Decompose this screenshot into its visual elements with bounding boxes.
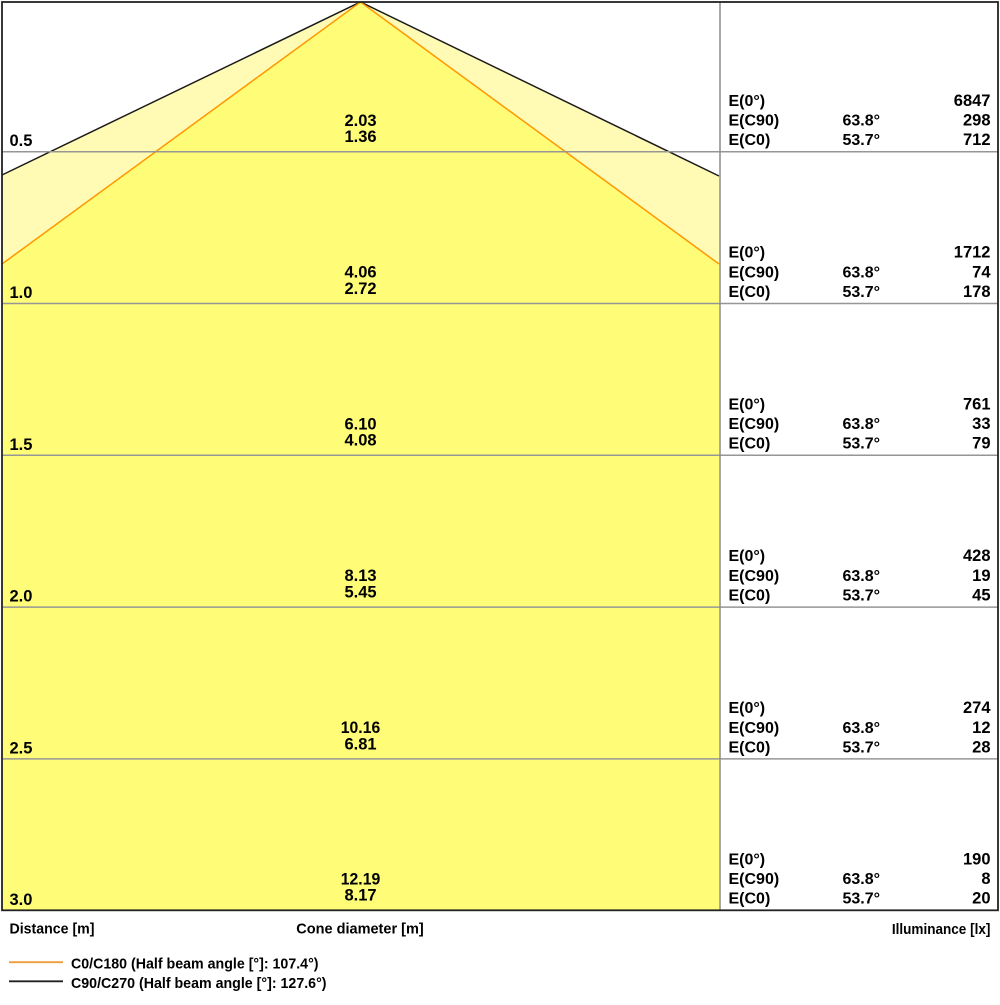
svg-text:10.16: 10.16 — [341, 719, 381, 737]
svg-text:E(C0): E(C0) — [729, 284, 771, 301]
svg-text:53.7°: 53.7° — [843, 739, 881, 756]
svg-text:6.10: 6.10 — [344, 415, 376, 433]
svg-text:C90/C270 (Half beam angle [°]:: C90/C270 (Half beam angle [°]: 127.6°) — [71, 975, 327, 992]
svg-text:5.45: 5.45 — [344, 584, 376, 602]
svg-text:C0/C180 (Half beam angle [°]:: C0/C180 (Half beam angle [°]: 107.4°) — [71, 956, 319, 973]
svg-text:53.7°: 53.7° — [843, 284, 881, 301]
svg-text:4.06: 4.06 — [344, 264, 376, 282]
svg-text:63.8°: 63.8° — [843, 568, 881, 585]
svg-text:53.7°: 53.7° — [843, 588, 881, 605]
svg-text:190: 190 — [963, 850, 991, 868]
svg-text:8.17: 8.17 — [344, 887, 376, 905]
svg-text:298: 298 — [963, 112, 991, 130]
svg-text:712: 712 — [963, 131, 991, 149]
svg-text:33: 33 — [972, 415, 990, 433]
svg-text:1.36: 1.36 — [344, 128, 376, 146]
svg-text:2.03: 2.03 — [344, 112, 376, 130]
svg-text:E(C0): E(C0) — [729, 739, 771, 756]
svg-text:E(0°): E(0°) — [729, 396, 766, 413]
svg-text:Distance [m]: Distance [m] — [10, 921, 95, 938]
svg-text:E(0°): E(0°) — [729, 93, 766, 110]
svg-text:428: 428 — [963, 547, 991, 565]
svg-text:E(C90): E(C90) — [729, 568, 780, 585]
svg-text:6.81: 6.81 — [344, 735, 376, 753]
svg-text:E(0°): E(0°) — [729, 548, 766, 565]
svg-text:19: 19 — [972, 567, 990, 585]
svg-text:74: 74 — [972, 263, 991, 281]
svg-text:1.5: 1.5 — [10, 436, 33, 454]
svg-text:12.19: 12.19 — [341, 870, 381, 888]
svg-text:53.7°: 53.7° — [843, 436, 881, 453]
svg-text:Illuminance [lx]: Illuminance [lx] — [892, 921, 991, 938]
svg-text:63.8°: 63.8° — [843, 113, 881, 130]
svg-text:6847: 6847 — [954, 92, 991, 110]
svg-text:63.8°: 63.8° — [843, 264, 881, 281]
svg-text:E(0°): E(0°) — [729, 245, 766, 262]
svg-text:45: 45 — [972, 587, 990, 605]
svg-text:E(C90): E(C90) — [729, 264, 780, 281]
svg-text:2.5: 2.5 — [10, 739, 33, 757]
svg-text:0.5: 0.5 — [10, 132, 33, 150]
svg-text:178: 178 — [963, 283, 991, 301]
svg-text:53.7°: 53.7° — [843, 132, 881, 149]
svg-text:53.7°: 53.7° — [843, 891, 881, 908]
svg-text:E(C90): E(C90) — [729, 416, 780, 433]
svg-text:E(C90): E(C90) — [729, 720, 780, 737]
svg-text:274: 274 — [963, 699, 991, 717]
svg-text:12: 12 — [972, 719, 990, 737]
svg-text:4.08: 4.08 — [344, 432, 376, 450]
svg-text:1.0: 1.0 — [10, 284, 33, 302]
svg-text:E(0°): E(0°) — [729, 700, 766, 717]
svg-text:E(C0): E(C0) — [729, 436, 771, 453]
svg-text:63.8°: 63.8° — [843, 416, 881, 433]
svg-text:Cone diameter [m]: Cone diameter [m] — [296, 921, 424, 938]
svg-text:E(C0): E(C0) — [729, 588, 771, 605]
svg-text:79: 79 — [972, 435, 990, 453]
svg-text:2.0: 2.0 — [10, 588, 33, 606]
svg-text:3.0: 3.0 — [10, 891, 33, 909]
svg-text:E(C90): E(C90) — [729, 113, 780, 130]
svg-text:E(C0): E(C0) — [729, 132, 771, 149]
svg-text:8: 8 — [981, 870, 990, 888]
svg-text:8.13: 8.13 — [344, 567, 376, 585]
svg-text:63.8°: 63.8° — [843, 871, 881, 888]
svg-text:63.8°: 63.8° — [843, 720, 881, 737]
svg-text:28: 28 — [972, 738, 990, 756]
svg-text:761: 761 — [963, 395, 991, 413]
svg-text:E(0°): E(0°) — [729, 851, 766, 868]
svg-text:E(C0): E(C0) — [729, 891, 771, 908]
svg-text:2.72: 2.72 — [344, 280, 376, 298]
svg-text:E(C90): E(C90) — [729, 871, 780, 888]
svg-text:20: 20 — [972, 890, 990, 908]
svg-text:1712: 1712 — [954, 244, 991, 262]
